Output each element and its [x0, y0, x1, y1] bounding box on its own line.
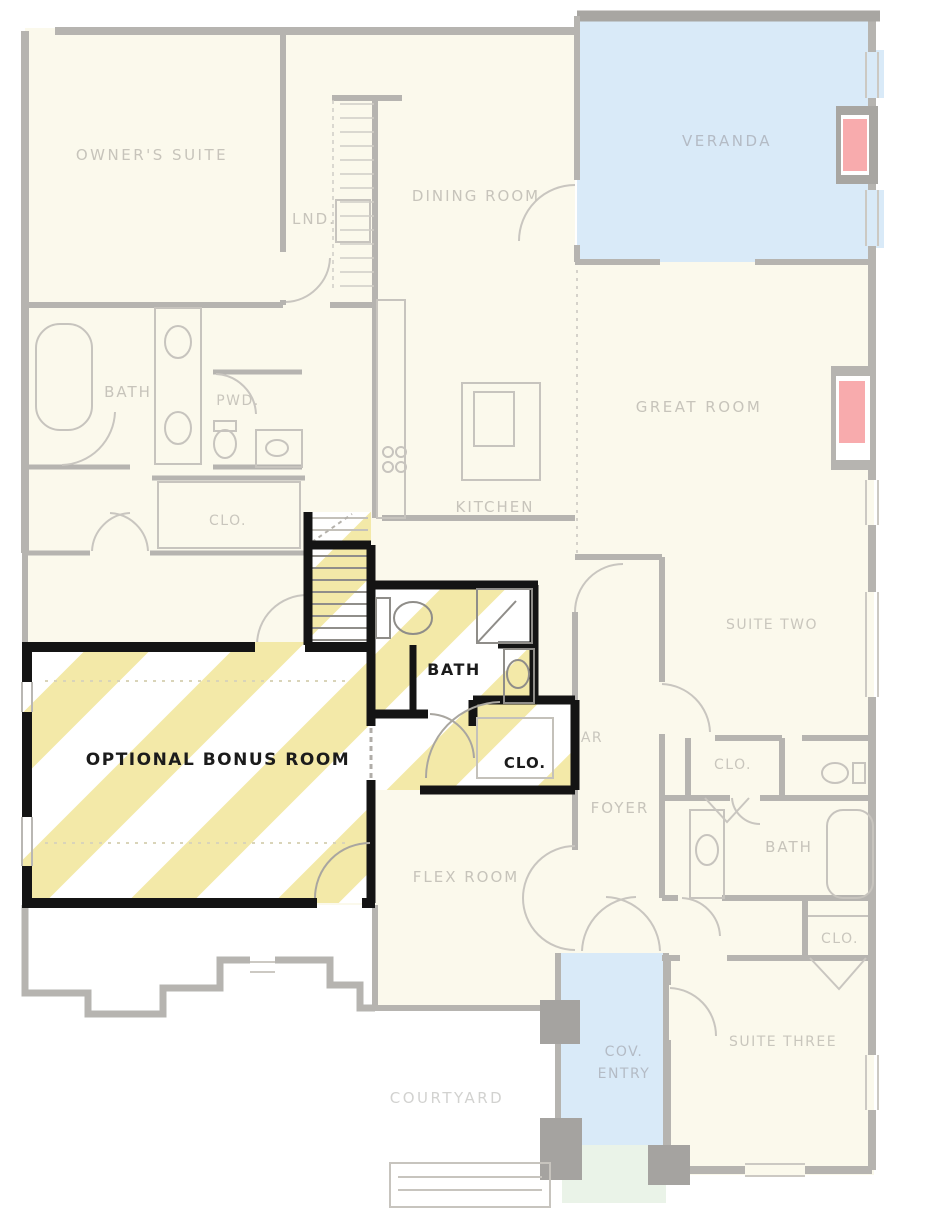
courtyard-steps [390, 1163, 550, 1207]
room-label-owners-suite: OWNER'S SUITE [76, 146, 228, 164]
room-label-suite-two: SUITE TWO [726, 617, 818, 633]
room-label-laundry: LND. [292, 210, 336, 228]
room-label-bonus-room: OPTIONAL BONUS ROOM [86, 750, 350, 770]
room-label-owners-bath: BATH [104, 383, 152, 401]
room-label-veranda: VERANDA [682, 132, 772, 150]
room-label-cov-entry-line2: ENTRY [598, 1066, 651, 1082]
room-label-flex-room: FLEX ROOM [413, 868, 519, 886]
room-label-kitchen: KITCHEN [456, 498, 535, 516]
room-label-suite-two-closet: CLO. [714, 757, 752, 773]
room-label-owners-closet: CLO. [209, 513, 247, 529]
room-label-powder: PWD. [216, 393, 260, 409]
room-label-suite-two-bath: BATH [765, 838, 813, 856]
room-label-hall-closet: CLO. [821, 931, 859, 947]
floor-plan-image: OWNER'S SUITE LND. DINING ROOM VERANDA B… [0, 0, 939, 1212]
room-label-great-room: GREAT ROOM [636, 398, 763, 416]
room-label-partial-ar: AR [581, 730, 603, 746]
floor-plan-svg: OWNER'S SUITE LND. DINING ROOM VERANDA B… [0, 0, 939, 1212]
room-label-dining-room: DINING ROOM [412, 187, 540, 205]
room-label-courtyard: COURTYARD [390, 1089, 505, 1107]
room-label-suite-three: SUITE THREE [729, 1034, 837, 1050]
room-label-cov-entry-line1: COV. [605, 1044, 644, 1060]
room-label-bonus-closet: CLO. [504, 754, 546, 772]
room-label-bonus-bath: BATH [427, 660, 481, 679]
room-label-foyer: FOYER [591, 799, 650, 817]
bonus-closet-area [471, 698, 575, 790]
greatroom-fireplace [839, 381, 865, 443]
bonus-stairs-area [304, 512, 371, 645]
veranda-window-upper [858, 50, 884, 98]
veranda-fireplace [843, 119, 867, 171]
veranda-window-lower [858, 190, 884, 248]
